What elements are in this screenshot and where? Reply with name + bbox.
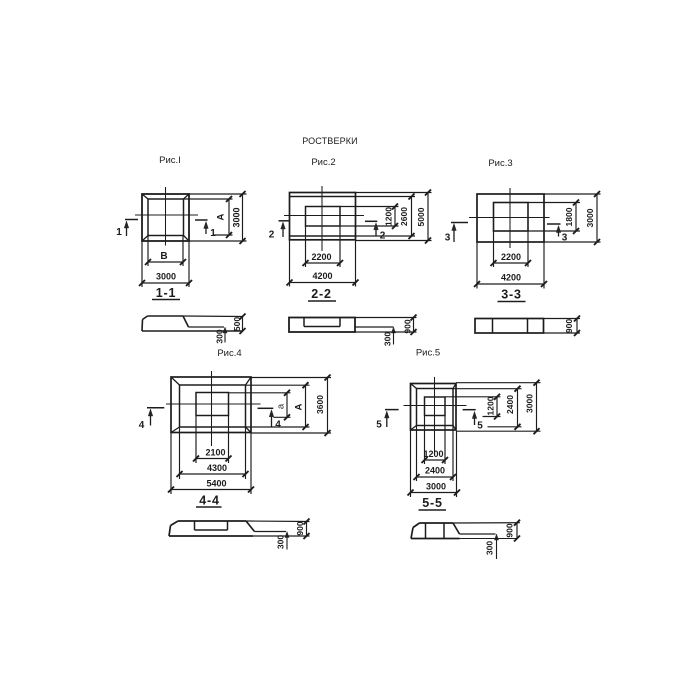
svg-text:2: 2 (269, 230, 275, 241)
svg-text:РОСТВЕРКИ: РОСТВЕРКИ (302, 136, 358, 146)
svg-text:Рис.4: Рис.4 (217, 348, 241, 359)
svg-text:Рис.2: Рис.2 (311, 157, 335, 168)
svg-text:1800: 1800 (564, 207, 574, 226)
svg-text:В: В (160, 251, 167, 262)
svg-text:А: А (215, 213, 226, 220)
svg-text:3000: 3000 (232, 207, 242, 227)
svg-text:2: 2 (380, 231, 386, 242)
svg-text:1-1: 1-1 (156, 286, 176, 300)
svg-text:А: А (293, 403, 304, 410)
svg-text:1: 1 (210, 228, 216, 239)
svg-text:4: 4 (139, 420, 145, 431)
svg-text:300: 300 (382, 332, 392, 346)
svg-text:3-3: 3-3 (501, 288, 521, 302)
svg-text:2400: 2400 (505, 395, 515, 414)
svg-text:4-4: 4-4 (199, 494, 219, 508)
svg-text:3000: 3000 (524, 394, 534, 413)
svg-text:4: 4 (275, 420, 281, 431)
svg-text:1200: 1200 (423, 449, 443, 459)
svg-text:5: 5 (376, 420, 382, 431)
svg-text:3000: 3000 (426, 482, 446, 492)
svg-text:4300: 4300 (207, 463, 227, 473)
svg-text:2600: 2600 (399, 207, 409, 226)
svg-text:а: а (275, 403, 286, 409)
svg-text:1: 1 (116, 227, 122, 238)
svg-text:900: 900 (504, 523, 514, 537)
svg-text:900: 900 (295, 521, 305, 535)
svg-text:900: 900 (564, 319, 574, 333)
svg-text:2200: 2200 (501, 252, 521, 262)
svg-text:300: 300 (484, 541, 494, 555)
svg-text:Рис.5: Рис.5 (416, 348, 440, 359)
svg-text:Рис.I: Рис.I (159, 155, 181, 166)
svg-text:3: 3 (445, 233, 451, 244)
svg-text:2200: 2200 (311, 252, 331, 262)
svg-text:1200: 1200 (485, 396, 495, 415)
svg-text:1200: 1200 (383, 207, 393, 226)
svg-text:Рис.3: Рис.3 (488, 158, 512, 169)
svg-text:2400: 2400 (425, 466, 445, 476)
svg-text:5-5: 5-5 (422, 496, 442, 510)
svg-text:3: 3 (562, 233, 568, 244)
svg-text:2100: 2100 (205, 448, 225, 458)
svg-text:2-2: 2-2 (311, 287, 331, 301)
svg-text:4200: 4200 (312, 271, 332, 281)
svg-text:3000: 3000 (585, 208, 595, 227)
svg-text:300: 300 (275, 535, 285, 549)
svg-text:300: 300 (214, 329, 224, 343)
svg-text:900: 900 (402, 319, 412, 333)
svg-text:5: 5 (477, 421, 483, 432)
svg-text:3600: 3600 (315, 395, 325, 414)
svg-text:4200: 4200 (501, 273, 521, 283)
svg-text:5000: 5000 (416, 207, 426, 226)
svg-text:5400: 5400 (206, 479, 226, 489)
svg-text:500: 500 (232, 317, 242, 331)
svg-text:3000: 3000 (156, 272, 176, 282)
